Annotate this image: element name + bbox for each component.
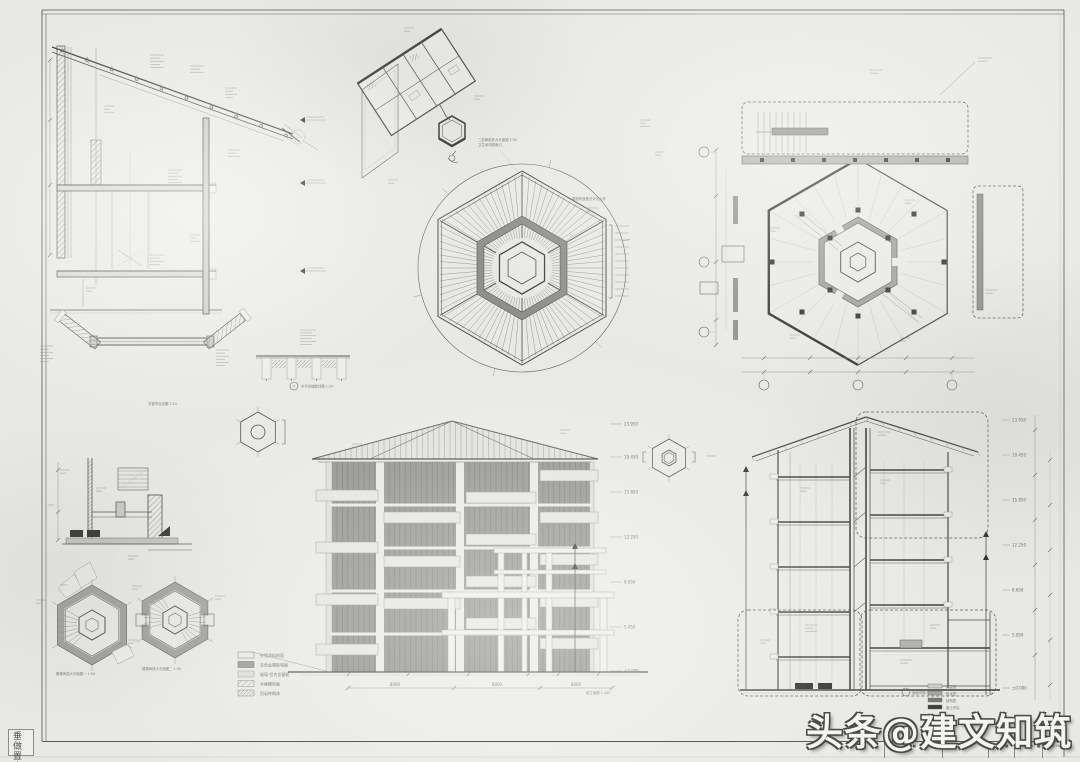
svg-text:木格栅饰面: 木格栅饰面 xyxy=(260,681,280,687)
partial-floor-plan: 二层局部放大平面图 1:50卫生间详图索引 xyxy=(358,28,518,183)
svg-text:23.950: 23.950 xyxy=(624,422,638,427)
svg-text:8.650: 8.650 xyxy=(1012,588,1024,593)
svg-text:15.850: 15.850 xyxy=(624,490,638,495)
svg-text:5.050: 5.050 xyxy=(624,625,636,630)
building-elevation: 800080008000剖立面图 1:10023.95019.45015.850… xyxy=(252,415,648,695)
drawing-sheet: 二层局部放大平面图 1:50卫生间详图索引 屋面构造做法详见大样 天窗节点详图 … xyxy=(0,0,1080,762)
svg-text:二层局部放大平面图 1:50: 二层局部放大平面图 1:50 xyxy=(478,137,517,142)
svg-text:8000: 8000 xyxy=(390,682,401,687)
svg-text:19.450: 19.450 xyxy=(624,455,638,460)
hexagonal-roof-framing-plan: 屋面构造做法详见大样 xyxy=(382,120,665,413)
svg-text:8000: 8000 xyxy=(571,682,582,687)
watermark-text: 头条@建文知筑 xyxy=(622,702,1072,756)
svg-text:12.250: 12.250 xyxy=(624,535,638,540)
svg-text:楼梯间放大平面图一 1:50: 楼梯间放大平面图一 1:50 xyxy=(56,671,95,676)
material-legend: 外墙涂料饰面灰色金属板墙面玻璃·铝合金窗框木格栅饰面页岩砖砌体 xyxy=(238,652,289,696)
svg-text:灰色金属板墙面: 灰色金属板墙面 xyxy=(260,662,288,668)
svg-text:23.950: 23.950 xyxy=(1012,418,1026,423)
svg-text:屋面构造做法详见大样: 屋面构造做法详见大样 xyxy=(572,196,607,201)
hexagonal-floor-plan xyxy=(699,58,1023,392)
svg-text:楼梯间放大平面图二 1:50: 楼梯间放大平面图二 1:50 xyxy=(142,666,181,671)
svg-text:卫生间详图索引: 卫生间详图索引 xyxy=(478,142,502,147)
foundation-detail xyxy=(48,458,192,559)
svg-text:8000: 8000 xyxy=(492,682,503,687)
wall-section-detail xyxy=(48,46,326,314)
svg-text:12.250: 12.250 xyxy=(1012,543,1026,548)
svg-text:玻璃·铝合金窗框: 玻璃·铝合金窗框 xyxy=(260,671,289,677)
svg-text:木平台铺装详图 1:20: 木平台铺装详图 1:20 xyxy=(301,384,333,389)
svg-text:天窗节点详图 1:15: 天窗节点详图 1:15 xyxy=(148,401,177,406)
corner-stamp: 垂做置人 xyxy=(8,729,34,756)
sheet-linework: 二层局部放大平面图 1:50卫生间详图索引 屋面构造做法详见大样 天窗节点详图 … xyxy=(0,0,1080,762)
svg-text:7: 7 xyxy=(293,384,295,388)
skylight-detail: 天窗节点详图 1:15 xyxy=(40,308,251,406)
svg-text:8.650: 8.650 xyxy=(624,580,636,585)
svg-text:页岩砖砌体: 页岩砖砌体 xyxy=(260,690,280,696)
svg-text:15.850: 15.850 xyxy=(1012,498,1026,503)
svg-text:保温层: 保温层 xyxy=(946,684,957,689)
svg-text:±0.000: ±0.000 xyxy=(624,669,639,674)
deck-paving-detail: 7木平台铺装详图 1:20 xyxy=(256,330,350,390)
svg-text:19.450: 19.450 xyxy=(1012,453,1026,458)
stair-core-plans: 楼梯间放大平面图一 1:50楼梯间放大平面图二 1:50 xyxy=(36,562,225,676)
svg-text:防水层: 防水层 xyxy=(946,691,957,696)
svg-text:5.050: 5.050 xyxy=(1012,633,1024,638)
svg-text:剖立面图 1:100: 剖立面图 1:100 xyxy=(586,690,610,695)
building-section: 23.95019.45015.85012.2508.6505.050±0.000… xyxy=(738,412,1052,710)
svg-text:±0.000: ±0.000 xyxy=(1012,686,1027,691)
